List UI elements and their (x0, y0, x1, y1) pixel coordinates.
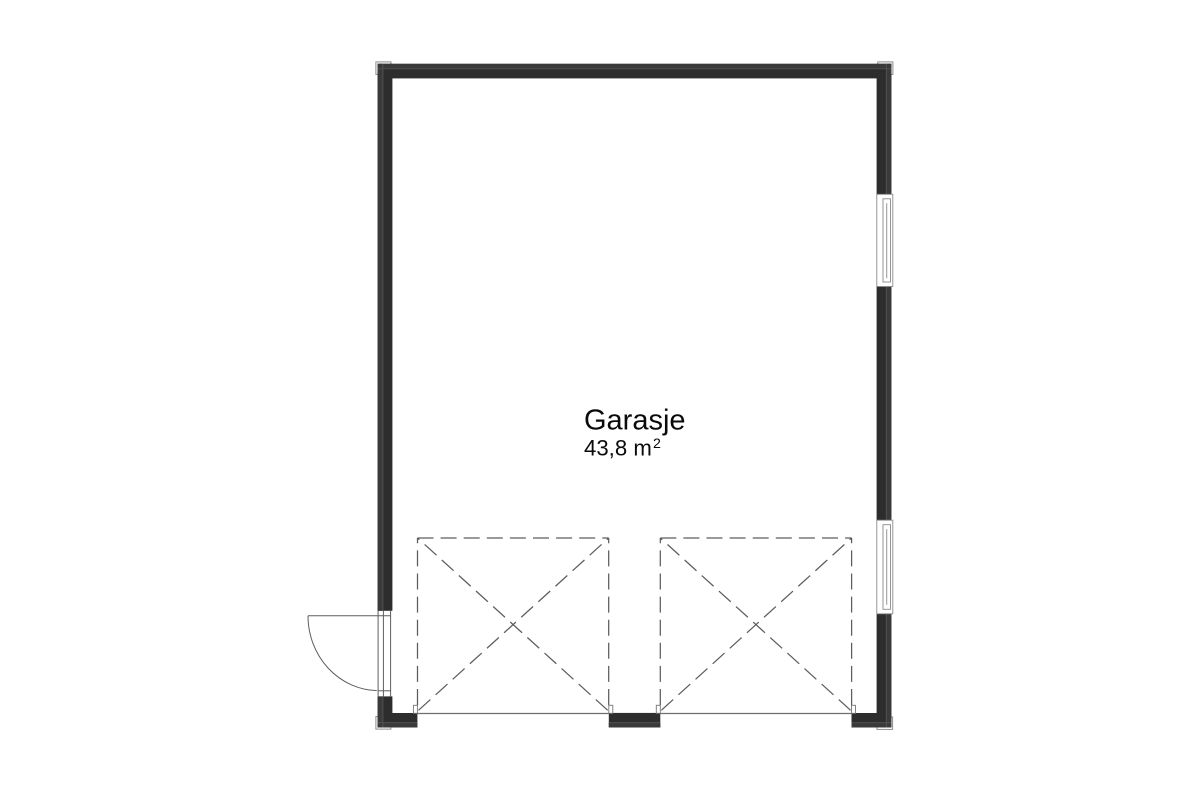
svg-text:Garasje: Garasje (584, 404, 686, 436)
svg-text:2: 2 (653, 436, 661, 452)
svg-text:43,8 m: 43,8 m (584, 436, 652, 461)
